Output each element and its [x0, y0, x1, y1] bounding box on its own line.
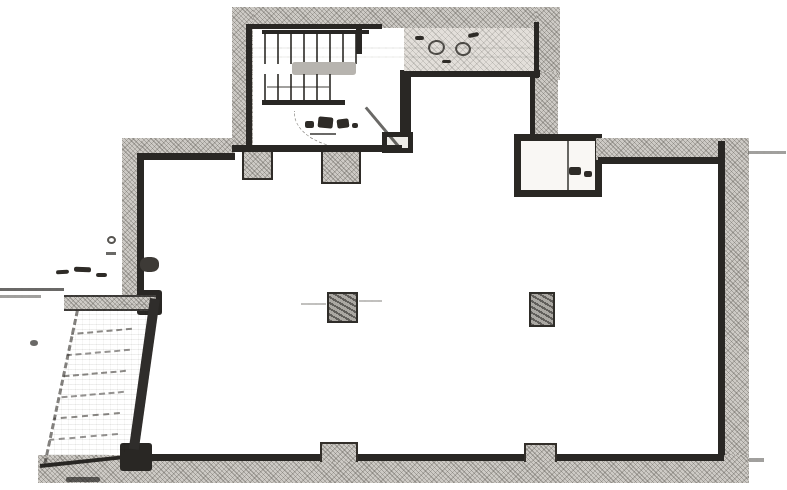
- outer-wall-right: [724, 138, 749, 483]
- outer-wall-top-left-edge: [140, 153, 235, 160]
- illegible-left-annotation: [96, 273, 107, 277]
- illegible-stair-label: [317, 116, 333, 129]
- outside-left-mark: [107, 236, 116, 244]
- annex-tread-line: [50, 412, 120, 420]
- notch-right-inner-edge: [530, 76, 535, 140]
- right-leader-tick-bottom: [749, 458, 764, 462]
- wall-pier-top-2: [321, 152, 361, 184]
- illegible-stair-label: [310, 133, 336, 135]
- illegible-left-annotation: [56, 270, 69, 275]
- column-a-centerline-left: [301, 303, 326, 305]
- illegible-stair-label: [336, 118, 349, 129]
- column-b: [529, 292, 555, 327]
- illegible-shaft-marks: [569, 167, 581, 175]
- external-stair-annex: [40, 295, 160, 480]
- stair-stringer-step: [356, 25, 362, 54]
- wall-pier-bottom-2: [524, 443, 557, 462]
- left-wall-door-mark: [140, 257, 159, 272]
- column-a: [327, 292, 358, 323]
- right-leader-tick-top: [748, 151, 786, 154]
- column-a-centerline-right: [359, 300, 382, 302]
- outer-wall-bottom-edge: [140, 454, 724, 461]
- below-annex-mark: [66, 477, 100, 482]
- wall-pier-top-1: [242, 152, 273, 180]
- floor-plan-canvas: [0, 0, 787, 490]
- annex-tread-line: [52, 391, 124, 399]
- pipe-shaft: [514, 134, 602, 197]
- illegible-landing-annotation: [415, 36, 424, 40]
- annex-tread-line: [58, 328, 132, 336]
- outside-left-line: [0, 295, 41, 298]
- illegible-shaft-marks: [584, 171, 592, 177]
- outer-wall-left-edge: [137, 153, 144, 300]
- illegible-stair-label: [305, 121, 314, 128]
- outer-wall-top-right-edge: [598, 157, 724, 164]
- stair-flight-bottom-line: [262, 100, 345, 105]
- annex-tread-line: [48, 433, 118, 441]
- outside-left-mark: [106, 252, 116, 255]
- tower-bottom-wall-line: [232, 145, 402, 152]
- notch-top-wall-line: [400, 70, 540, 77]
- pipe-shaft-divider: [567, 141, 569, 190]
- illegible-stair-label: [352, 123, 358, 128]
- outer-wall-right-edge: [718, 141, 725, 481]
- illegible-landing-annotation: [442, 60, 451, 63]
- wall-pier-bottom-1: [320, 442, 358, 462]
- stair-mid-line: [267, 86, 329, 88]
- notch-right-wall: [532, 72, 558, 142]
- stair-top-edge-line: [250, 24, 382, 29]
- outside-left-dot: [30, 340, 38, 346]
- illegible-left-annotation: [74, 267, 91, 273]
- tower-left-inner-edge: [246, 24, 252, 148]
- stair-treads-upper: [264, 33, 366, 64]
- outside-left-line: [0, 288, 64, 291]
